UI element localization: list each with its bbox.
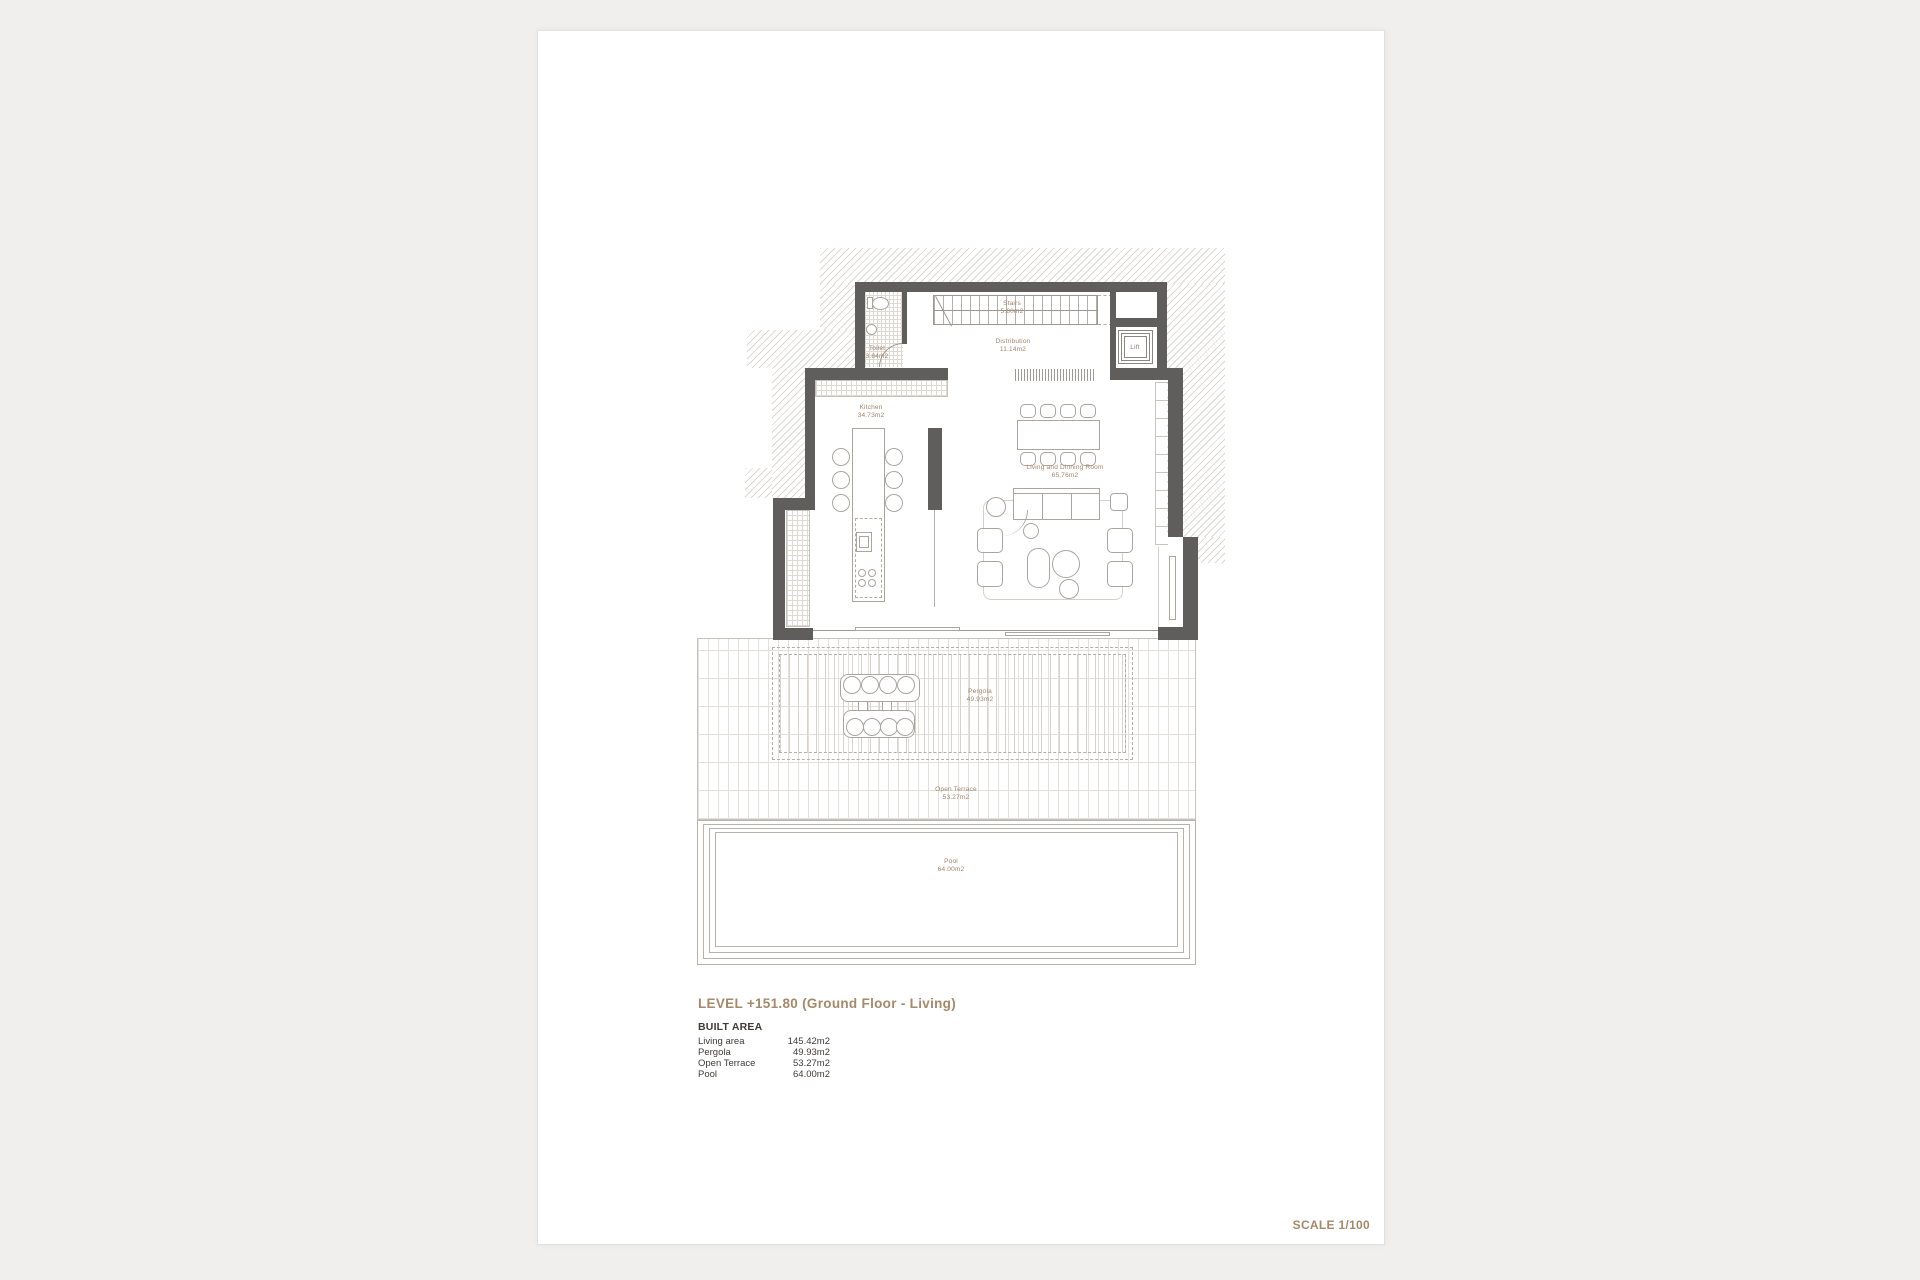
tv-sideboard	[1169, 556, 1176, 620]
outdoor-cushion	[879, 676, 897, 694]
area-label: Open Terrace	[698, 1058, 755, 1069]
wall	[855, 282, 1167, 292]
chimney-column	[928, 428, 942, 510]
area-label: Living area	[698, 1036, 744, 1047]
area-label: Pool	[698, 1069, 717, 1080]
room-name: Living and Dinning Room	[1026, 464, 1103, 471]
hatch-top	[820, 248, 1225, 284]
room-label-pergola: Pergola 49.93m2	[945, 688, 1015, 703]
pergola-joists	[779, 654, 1126, 753]
sliding-door-panel	[855, 627, 960, 631]
sofa-cushion-divider	[1071, 493, 1072, 520]
room-name: Pergola	[968, 688, 992, 695]
room-name: Toilet	[869, 345, 885, 352]
dining-chair	[1080, 404, 1096, 418]
sofa-backrest-line	[1013, 493, 1100, 494]
pool-coping	[715, 832, 1178, 947]
hatch-left-band	[772, 368, 805, 498]
area-value: 49.93m2	[793, 1047, 830, 1058]
island-stool	[885, 494, 903, 512]
cooktop-burner	[858, 579, 866, 587]
coffee-table-small	[1059, 579, 1079, 599]
outdoor-cushion	[896, 718, 914, 736]
outdoor-cushion	[863, 718, 881, 736]
side-table	[1110, 493, 1128, 511]
coffee-table	[1052, 550, 1080, 578]
room-name: Stairs	[1003, 300, 1021, 307]
cooktop-burner	[868, 579, 876, 587]
wall	[1158, 627, 1198, 640]
outdoor-cushion	[897, 676, 915, 694]
area-value: 64.00m2	[793, 1069, 830, 1080]
island-stool	[832, 494, 850, 512]
sliding-door-panel	[1005, 632, 1110, 636]
room-label-pool: Pool 64.00m2	[916, 858, 986, 873]
room-label-living: Living and Dinning Room 65.76m2	[1000, 464, 1130, 479]
room-name: Open Terrace	[935, 786, 977, 793]
area-label: Pergola	[698, 1047, 731, 1058]
wall	[773, 628, 813, 640]
built-area-heading: BUILT AREA	[698, 1021, 762, 1033]
armchair	[1107, 561, 1133, 587]
island-stool	[885, 448, 903, 466]
wall	[1110, 292, 1116, 380]
pouf	[1027, 548, 1050, 588]
dining-chair	[1040, 404, 1056, 418]
outdoor-cushion	[861, 676, 879, 694]
armchair	[1107, 528, 1133, 553]
distribution-step-screen	[1015, 369, 1095, 381]
island-stool	[885, 471, 903, 489]
wall	[1157, 282, 1167, 370]
room-area: 11.14m2	[1000, 346, 1026, 353]
wall	[902, 292, 907, 344]
wall	[773, 498, 815, 510]
area-row: Open Terrace 53.27m2	[698, 1058, 830, 1069]
room-area: 34.73m2	[858, 412, 885, 419]
area-row: Living area 145.42m2	[698, 1036, 830, 1047]
wall	[805, 380, 815, 498]
round-side-table	[1023, 523, 1039, 539]
drawing-canvas: Stairs 5.80m2 Distribution 11.14m2 Toile…	[0, 0, 1920, 1280]
room-label-lift: Lift	[1120, 344, 1150, 352]
armchair	[977, 561, 1003, 587]
hatch-left-bump	[745, 468, 772, 498]
room-area: 64.00m2	[938, 866, 965, 873]
glass-partition-line	[934, 510, 935, 607]
outdoor-cushion	[846, 718, 864, 736]
area-row: Pergola 49.93m2	[698, 1047, 830, 1058]
room-name: Distribution	[996, 338, 1031, 345]
dining-table	[1017, 420, 1100, 450]
room-area: 5.80m2	[1001, 308, 1024, 315]
sofa-cushion-divider	[1042, 493, 1043, 520]
area-value: 53.27m2	[793, 1058, 830, 1069]
dining-chair	[1020, 404, 1036, 418]
room-name: Pool	[944, 858, 958, 865]
room-label-kitchen: Kitchen 34.73m2	[836, 404, 906, 419]
wall	[1183, 537, 1198, 627]
room-label-distribution: Distribution 11.14m2	[973, 338, 1053, 353]
level-title: LEVEL +151.80 (Ground Floor - Living)	[698, 996, 956, 1011]
room-area: 49.93m2	[967, 696, 994, 703]
kitchen-counter-top	[815, 380, 948, 397]
room-area: 3.84m2	[866, 353, 889, 360]
wall	[1168, 370, 1183, 537]
island-stool	[832, 471, 850, 489]
hatch-left	[747, 330, 855, 368]
area-value: 145.42m2	[788, 1036, 830, 1047]
armchair	[977, 528, 1003, 553]
cooktop-burner	[858, 569, 866, 577]
kitchen-sink-basin	[859, 536, 869, 548]
room-label-stairs: Stairs 5.80m2	[977, 300, 1047, 315]
room-area: 65.76m2	[1052, 472, 1079, 479]
cooktop-burner	[868, 569, 876, 577]
wall	[805, 368, 948, 380]
wall	[773, 510, 785, 628]
room-area: 53.27m2	[943, 794, 970, 801]
room-label-open-terrace: Open Terrace 53.27m2	[911, 786, 1001, 801]
wall	[855, 282, 865, 380]
right-wall-shelving	[1155, 382, 1168, 545]
room-name: Kitchen	[859, 404, 882, 411]
hatch-left-upper	[820, 284, 855, 330]
scale-label: SCALE 1/100	[1270, 1218, 1370, 1232]
island-stool	[832, 448, 850, 466]
toilet-sink	[866, 324, 877, 335]
outdoor-cushion	[843, 676, 861, 694]
toilet-bowl	[872, 297, 889, 310]
area-row: Pool 64.00m2	[698, 1069, 830, 1080]
hatch-right-lower	[1198, 537, 1225, 563]
room-name: Lift	[1130, 344, 1139, 351]
wall	[1116, 318, 1157, 327]
kitchen-counter-left	[786, 510, 810, 627]
dining-chair	[1060, 404, 1076, 418]
room-label-toilet: Toilet 3.84m2	[847, 345, 907, 360]
